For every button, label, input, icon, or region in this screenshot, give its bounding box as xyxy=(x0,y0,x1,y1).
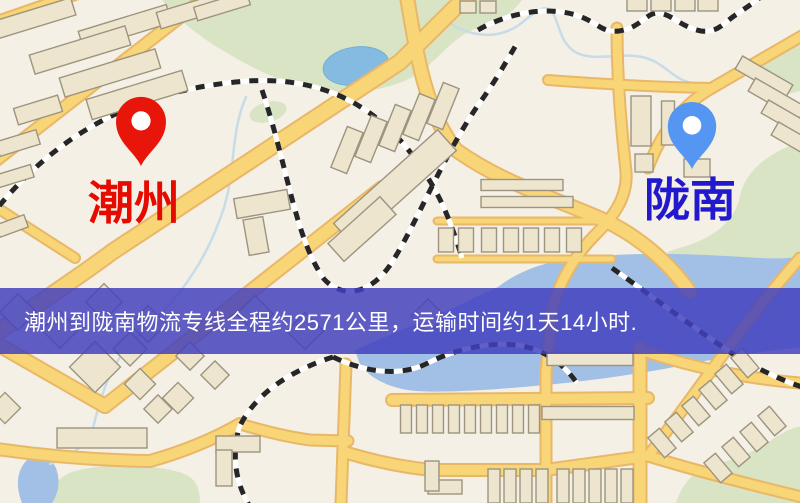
route-info-text: 潮州到陇南物流专线全程约2571公里，运输时间约1天14小时. xyxy=(0,305,637,337)
destination-city-label: 陇南 xyxy=(644,177,736,223)
route-info-banner: 潮州到陇南物流专线全程约2571公里，运输时间约1天14小时. xyxy=(0,288,800,354)
origin-city-label: 潮州 xyxy=(88,180,180,226)
origin-pin-icon xyxy=(110,88,172,166)
logistics-route-map: 潮州到陇南物流专线全程约2571公里，运输时间约1天14小时. 潮州 陇南 xyxy=(0,0,800,503)
map-canvas xyxy=(0,0,800,503)
destination-pin-icon xyxy=(661,91,723,169)
